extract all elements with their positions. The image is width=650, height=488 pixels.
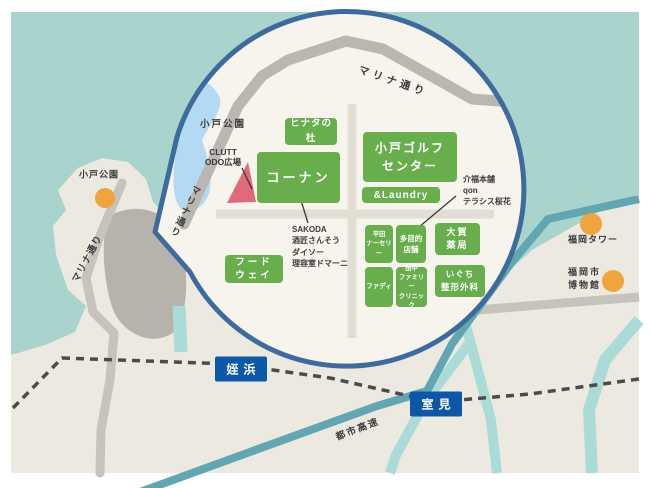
place-konan: コーナン [257, 152, 340, 203]
place-oga-pharmacy: 大賀 薬局 [435, 223, 480, 255]
place-hirata-nursery: 平田 ナーセリー [365, 225, 393, 263]
fukuoka-museum-label: 福岡市 博物館 [568, 266, 601, 292]
fukuoka-tower-dot [580, 213, 602, 235]
river-stub [179, 306, 181, 352]
sakoda-label: SAKODA 酒匠さんそう ダイソー 理容室ドマーニ [292, 224, 348, 269]
fukuoka-museum-dot [602, 270, 624, 292]
place-laundry: &Laundry [362, 187, 440, 203]
fukuoka-tower-label: 福岡タワー [568, 234, 618, 245]
place-iguchi-orthopedics: いぐち 整形外科 [435, 265, 485, 297]
bubble-odo-park-label: 小戸公園 [200, 119, 246, 131]
odo-park-label: 小戸公園 [79, 169, 119, 180]
station-meinohama: 姪浜 [215, 357, 267, 382]
place-foodway: フード ウェイ [225, 255, 283, 283]
map: ヒナタの杜 コーナン 小戸ゴルフ センター &Laundry 平田 ナーセリー … [0, 0, 650, 488]
place-tanaka-clinic: 田中 ファミリー クリニック [396, 267, 427, 307]
place-hinata: ヒナタの杜 [285, 118, 337, 145]
place-multipurpose: 多目的 店舗 [396, 225, 426, 263]
clutt-odo-label: CLUTT ODO広場 [205, 147, 241, 167]
kaifuku-label: 介福本舗 qon テラシス桜花 [463, 174, 511, 208]
place-odo-golf-center: 小戸ゴルフ センター [363, 132, 457, 182]
station-muromi: 室見 [410, 392, 462, 417]
place-fadi: ファディ [365, 267, 393, 307]
odo-park-dot [95, 188, 115, 208]
